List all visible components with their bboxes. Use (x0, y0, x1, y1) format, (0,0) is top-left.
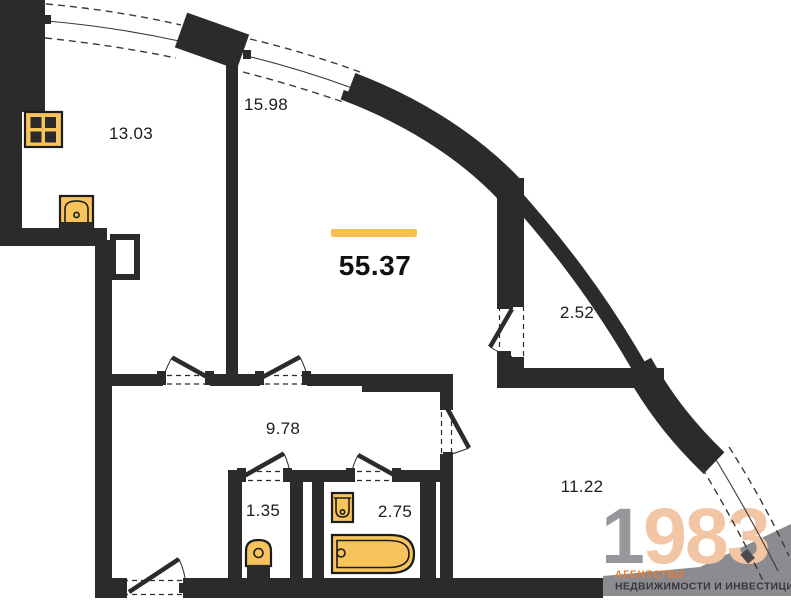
total-area-accent-bar (331, 229, 417, 237)
door-kitchen (157, 358, 214, 386)
vent-shaft (113, 237, 137, 277)
label-bedroom-area: 11.22 (561, 477, 604, 496)
door-bedroom (440, 401, 469, 460)
washbasin-icon (332, 493, 353, 522)
logo-year: 1983 (601, 491, 769, 580)
bathtub-icon (332, 535, 414, 573)
label-balcony-area: 2.52 (560, 303, 594, 322)
toilet-icon (246, 540, 271, 580)
window-top-left (42, 4, 181, 58)
logo-year-gray: 1 (601, 491, 643, 580)
logo-tagline-2: НЕДВИЖИМОСТИ И ИНВЕСТИЦИЙ (615, 580, 791, 593)
facade-wall-upper (350, 87, 510, 190)
labels: 13.03 15.98 2.52 9.78 1.35 2.75 11.22 55… (109, 95, 603, 521)
facade-wall-balcony (505, 185, 642, 372)
door-living-room (255, 357, 311, 385)
label-total-area: 55.37 (339, 250, 412, 281)
fixtures (25, 112, 414, 580)
kitchen-sink-icon (60, 196, 93, 229)
label-hallway-area: 9.78 (266, 419, 300, 438)
stove-icon (25, 112, 62, 147)
door-balcony (490, 300, 524, 359)
door-wc (237, 454, 292, 483)
door-bathroom (346, 455, 401, 482)
floor-plan-canvas: 1983 АГЕНТСТВО НЕДВИЖИМОСТИ И ИНВЕСТИЦИЙ (0, 0, 791, 600)
label-living-area: 15.98 (244, 95, 288, 114)
logo-year-accent: 983 (643, 491, 769, 580)
label-kitchen-area: 13.03 (109, 124, 153, 143)
door-entrance (123, 559, 188, 595)
logo-tagline-1: АГЕНТСТВО (615, 570, 685, 581)
floor-plan: 1983 АГЕНТСТВО НЕДВИЖИМОСТИ И ИНВЕСТИЦИЙ (0, 0, 791, 600)
label-wc-area: 1.35 (246, 501, 280, 520)
facade-pier (181, 30, 243, 52)
window-top-middle (243, 39, 360, 103)
label-bathroom-area: 2.75 (378, 502, 412, 521)
